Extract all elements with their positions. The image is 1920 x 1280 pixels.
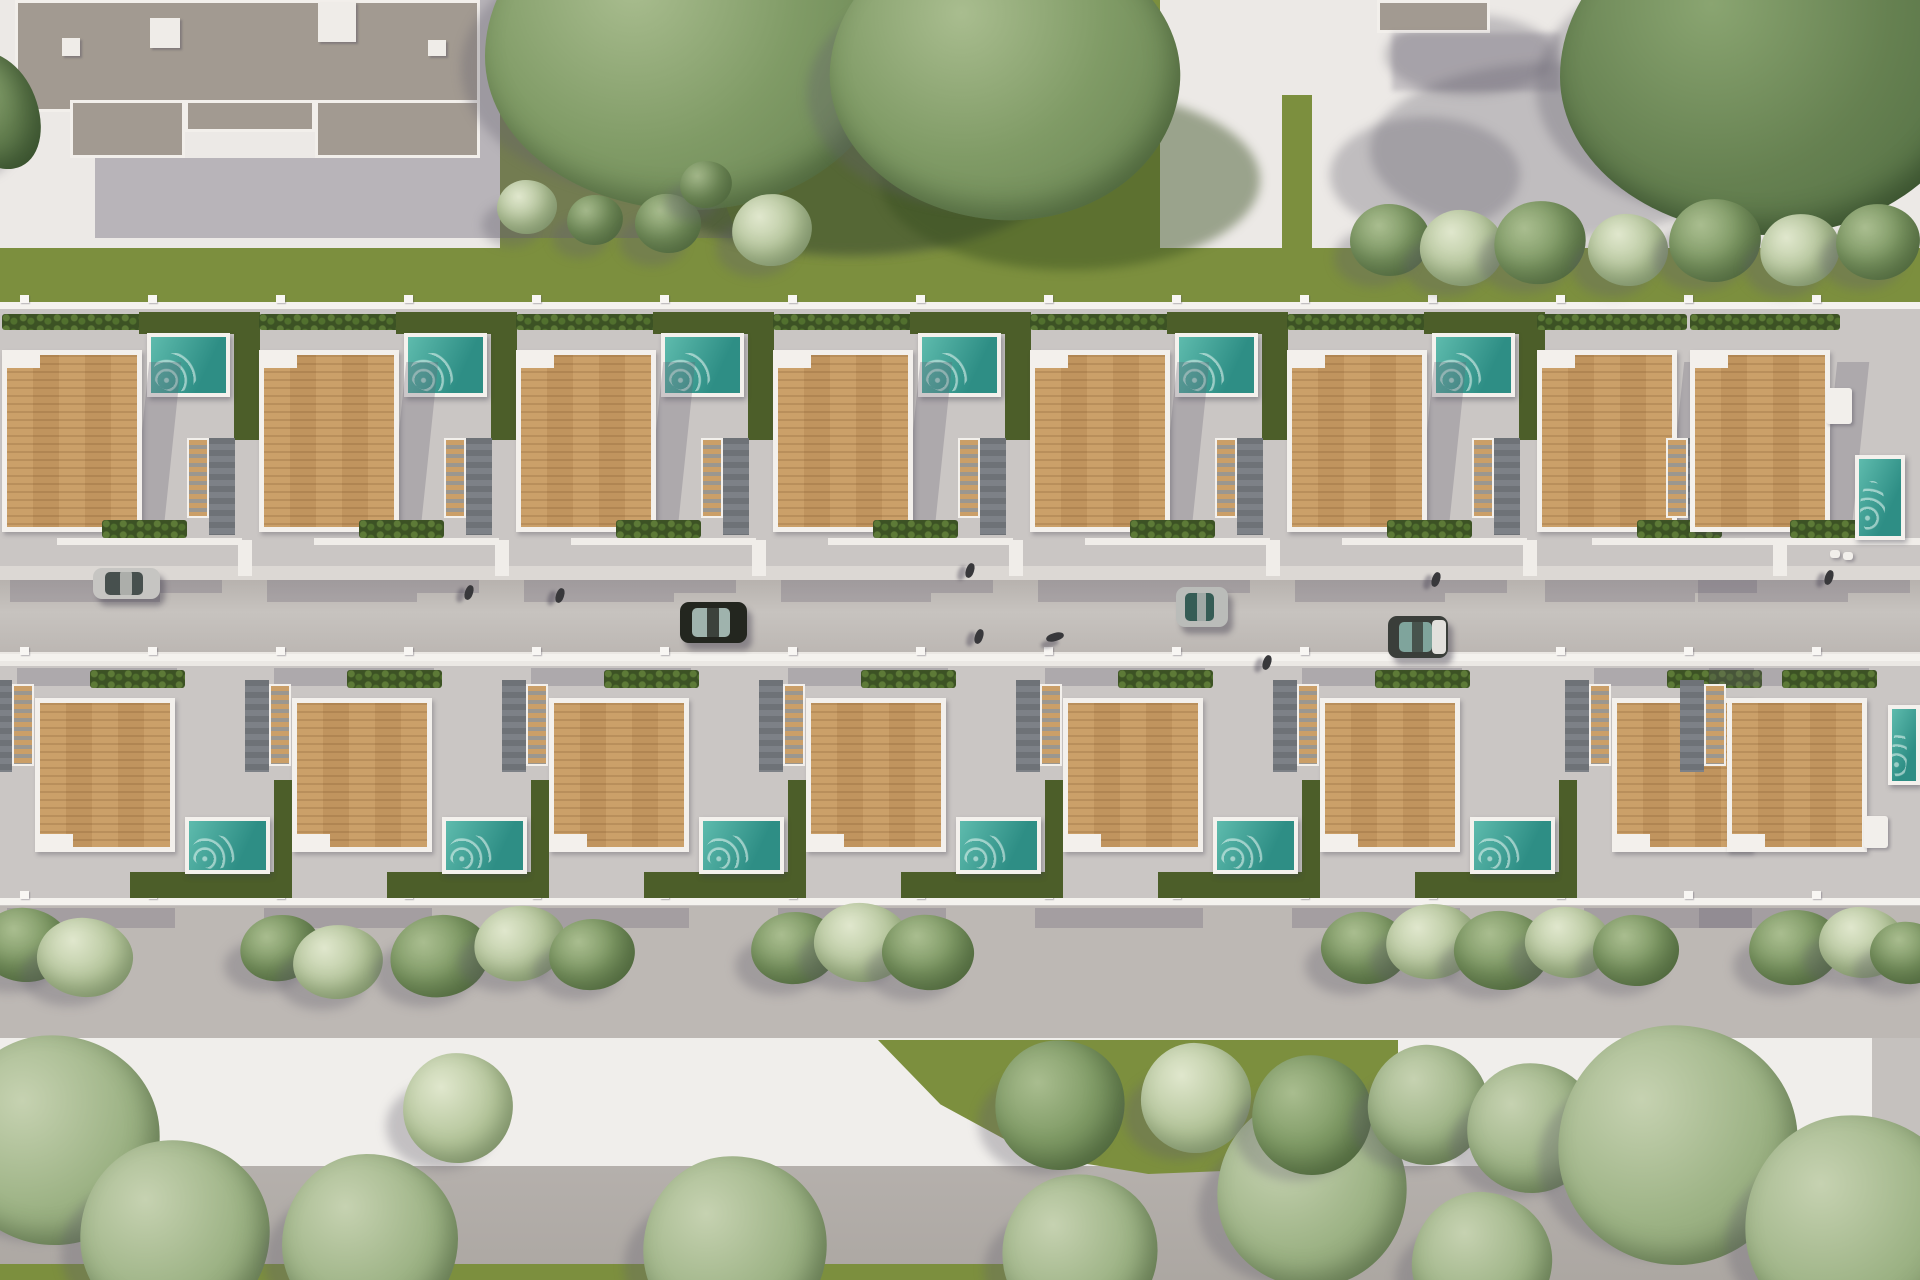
backyard-hedge (2, 314, 152, 330)
fence-post (404, 295, 413, 303)
fence-line (0, 302, 1920, 309)
fence-post (916, 295, 925, 303)
apartment-roof (15, 0, 480, 112)
fence-post (20, 647, 29, 655)
roof-notch (1034, 350, 1068, 368)
villa-roof-deck (1320, 698, 1460, 852)
roof-notch (6, 350, 40, 368)
fence-post (1172, 647, 1181, 655)
pool-steps (1476, 835, 1522, 869)
pool-steps (191, 835, 237, 869)
stairwell (1494, 438, 1520, 535)
roof-notch (553, 834, 587, 852)
drive-pillar (1009, 540, 1023, 576)
facade-shadow-on-road (781, 580, 931, 602)
drive-pillar (1523, 540, 1537, 576)
drive-pillar (1266, 540, 1280, 576)
fence-post (788, 647, 797, 655)
roof-access-stairs (1215, 438, 1237, 518)
fence-post (1044, 295, 1053, 303)
drive-pillar (495, 540, 509, 576)
villa-roof-deck (1287, 350, 1427, 532)
roof-access-stairs (269, 684, 291, 766)
front-hedge (616, 520, 701, 538)
stairwell (245, 680, 269, 772)
swimming-pool (442, 817, 527, 874)
pedestrian (964, 562, 976, 579)
roof-notch (520, 350, 554, 368)
front-hedge (1118, 670, 1213, 688)
backyard-hedge (1287, 314, 1437, 330)
roof-access-stairs (1589, 684, 1611, 766)
roof-vent (318, 2, 356, 42)
stairwell (466, 438, 492, 535)
dark-pickup (1388, 616, 1448, 658)
backyard-hedge (1690, 314, 1840, 330)
facade-shadow-on-road (267, 580, 417, 602)
fence-post (1812, 647, 1821, 655)
stairwell (1016, 680, 1040, 772)
fence-post (1684, 647, 1693, 655)
backyard-lawn (1167, 312, 1267, 334)
roof-access-stairs (187, 438, 209, 518)
villa-roof-deck (35, 698, 175, 852)
backyard-hedge (1030, 314, 1180, 330)
front-hedge (347, 670, 442, 688)
fence-post (276, 647, 285, 655)
roof-notch (1291, 350, 1325, 368)
stairwell (759, 680, 783, 772)
drive-pillar (1773, 540, 1787, 576)
pedestrian (973, 628, 985, 645)
fence-line (0, 898, 1920, 905)
front-hedge (604, 670, 699, 688)
roof-notch (1694, 350, 1728, 368)
patio-chair (1830, 550, 1840, 558)
pool-steps (1219, 835, 1265, 869)
swimming-pool (185, 817, 270, 874)
kiosk-roof (1377, 0, 1490, 33)
stairwell (0, 680, 12, 772)
backyard-lawn (234, 312, 260, 440)
fence-post (276, 295, 285, 303)
fence-post (20, 891, 29, 899)
facade-shadow-on-road (1295, 580, 1445, 602)
facade-shadow-on-road (1038, 580, 1188, 602)
patio-chair (1843, 552, 1853, 560)
drive-pillar (752, 540, 766, 576)
swimming-pool (1470, 817, 1555, 874)
villa-roof-deck (1727, 698, 1867, 852)
roof-notch (1324, 834, 1358, 852)
roof-access-stairs (958, 438, 980, 518)
facade-shadow-on-road (674, 580, 736, 593)
roof-access-stairs (1040, 684, 1062, 766)
roof-access-stairs (12, 684, 34, 766)
corner-pool (1888, 705, 1920, 785)
front-wall (571, 538, 756, 545)
car-roof (1412, 619, 1423, 654)
kiosk-shadow (1392, 33, 1560, 91)
front-wall (828, 538, 1013, 545)
stairwell (1680, 680, 1704, 772)
fence-post (660, 295, 669, 303)
front-wall (1085, 538, 1270, 545)
front-wall (314, 538, 499, 545)
fence-post (148, 647, 157, 655)
front-hedge (873, 520, 958, 538)
backyard-lawn (1158, 872, 1308, 898)
stairwell (980, 438, 1006, 535)
tree (635, 1148, 834, 1280)
swimming-pool (956, 817, 1041, 874)
apartment-roof (70, 100, 185, 158)
front-hedge (1375, 670, 1470, 688)
backyard-lawn (1005, 312, 1031, 440)
stairwell (1273, 680, 1297, 772)
stairwell (723, 438, 749, 535)
roof-notch (296, 834, 330, 852)
front-wall (1342, 538, 1527, 545)
villa-roof-deck (1537, 350, 1677, 532)
roof-vent (150, 18, 180, 48)
fence-post (1300, 647, 1309, 655)
fence-post (1812, 295, 1821, 303)
backyard-lawn (748, 312, 774, 440)
stairwell (1565, 680, 1589, 772)
patio-table (1864, 816, 1888, 848)
swimming-pool (1213, 817, 1298, 874)
backyard-lawn (1262, 312, 1288, 440)
black-suv (680, 602, 747, 643)
fence-post (1172, 295, 1181, 303)
fence-post (1684, 891, 1693, 899)
fence-post (404, 647, 413, 655)
fence-post (1812, 891, 1821, 899)
silver-hatchback (93, 568, 160, 599)
front-hedge (861, 670, 956, 688)
facade-shadow-on-road (160, 580, 222, 593)
roof-access-stairs (1472, 438, 1494, 518)
apartment-roof (185, 100, 315, 132)
front-hedge (1782, 670, 1877, 688)
front-hedge (359, 520, 444, 538)
backyard-lawn (653, 312, 753, 334)
tree (282, 1154, 458, 1280)
pool-steps (705, 835, 751, 869)
tree (990, 1162, 1171, 1280)
drive-pillar (238, 540, 252, 576)
backyard-lawn (130, 872, 280, 898)
lawn-right-strip (1282, 95, 1312, 250)
apartment-roof (315, 100, 480, 158)
tree-shadow (1330, 117, 1520, 233)
fence-post (148, 295, 157, 303)
roof-notch (263, 350, 297, 368)
swimming-pool (699, 817, 784, 874)
villa-roof-deck (806, 698, 946, 852)
backyard-lawn (491, 312, 517, 440)
front-hedge (1130, 520, 1215, 538)
backyard-hedge (1537, 314, 1687, 330)
fence-post (1684, 295, 1693, 303)
fence-post (1428, 295, 1437, 303)
roof-access-stairs (783, 684, 805, 766)
backyard-lawn (901, 872, 1051, 898)
fence-line (0, 654, 1920, 661)
roof-vent (428, 40, 446, 56)
fence-post (916, 647, 925, 655)
backyard-lawn (1424, 312, 1524, 334)
pool-steps (962, 835, 1008, 869)
facade-shadow-on-road (1545, 580, 1695, 602)
wall-shadow-on-promenade (1035, 908, 1203, 928)
front-hedge (90, 670, 185, 688)
backyard-hedge (773, 314, 923, 330)
roof-access-stairs (1666, 438, 1688, 518)
stairwell (1237, 438, 1263, 535)
pedestrian-cyclist (1045, 631, 1064, 643)
silver-suv (1176, 587, 1228, 627)
roof-notch (1731, 834, 1765, 852)
fence-post (532, 647, 541, 655)
car-roof (1197, 590, 1206, 624)
roof-notch (39, 834, 73, 852)
front-hedge (1387, 520, 1472, 538)
car-cab (1432, 620, 1445, 654)
fence-post (788, 295, 797, 303)
roof-notch (1616, 834, 1650, 852)
facade-shadow-on-road (524, 580, 674, 602)
roof-access-stairs (444, 438, 466, 518)
villa-roof-deck (1030, 350, 1170, 532)
roof-notch (777, 350, 811, 368)
backyard-lawn (910, 312, 1010, 334)
fence-post (1300, 295, 1309, 303)
scene-objects (0, 0, 1920, 1280)
villa-roof-deck (1063, 698, 1203, 852)
villa-roof-deck (259, 350, 399, 532)
stairwell (502, 680, 526, 772)
car-roof (707, 605, 719, 639)
backyard-lawn (1415, 872, 1565, 898)
villa-roof-deck (773, 350, 913, 532)
roof-access-stairs (1704, 684, 1726, 766)
fence-post (660, 647, 669, 655)
front-wall (57, 538, 242, 545)
backyard-lawn (139, 312, 239, 334)
villa-roof-deck (1690, 350, 1830, 532)
fence-post (20, 295, 29, 303)
roof-vent (62, 38, 80, 56)
fence-post (532, 295, 541, 303)
fence-post (1556, 647, 1565, 655)
roof-access-stairs (526, 684, 548, 766)
pool-steps (448, 835, 494, 869)
facade-shadow-on-road (931, 580, 993, 593)
backyard-lawn (644, 872, 794, 898)
facade-shadow-on-road (1445, 580, 1507, 593)
backyard-lawn (387, 872, 537, 898)
villa-roof-deck (292, 698, 432, 852)
facade-shadow-on-road (1848, 580, 1910, 593)
front-hedge (102, 520, 187, 538)
fence-post (1044, 647, 1053, 655)
patio-table (1826, 388, 1852, 424)
stairwell (209, 438, 235, 535)
villa-roof-deck (516, 350, 656, 532)
roof-access-stairs (1297, 684, 1319, 766)
corner-pool (1855, 455, 1905, 540)
roof-notch (810, 834, 844, 852)
roof-notch (1541, 350, 1575, 368)
villa-roof-deck (2, 350, 142, 532)
aerial-site-render (0, 0, 1920, 1280)
backyard-hedge (516, 314, 666, 330)
tree (1407, 1187, 1556, 1280)
roof-access-stairs (701, 438, 723, 518)
backyard-hedge (259, 314, 409, 330)
roof-notch (1067, 834, 1101, 852)
fence-post (1556, 295, 1565, 303)
villa-roof-deck (549, 698, 689, 852)
backyard-lawn (396, 312, 496, 334)
car-roof (120, 570, 132, 596)
